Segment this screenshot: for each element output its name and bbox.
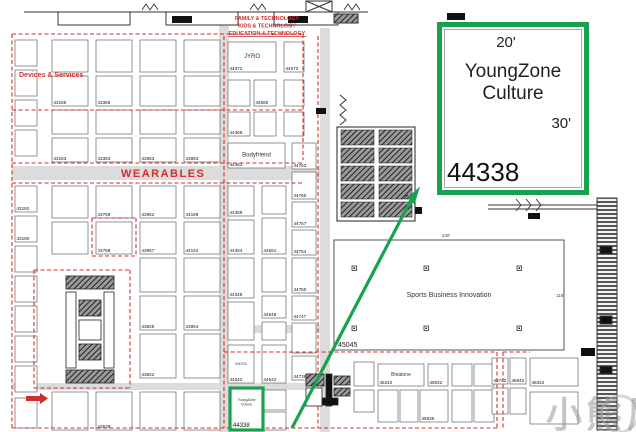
highlight-booth-name-2: Culture — [241, 403, 252, 407]
booth-number: 44763 — [294, 163, 307, 168]
open-area-dim-right: 118' — [556, 293, 564, 298]
booth — [15, 398, 37, 428]
booth-number: 43363 — [98, 156, 111, 161]
booth-number: 44747 — [294, 314, 307, 319]
callout-booth-number: 44338 — [447, 157, 519, 188]
floor-post-dot — [519, 268, 521, 270]
booth-name: MOTA — [235, 361, 247, 366]
booth — [262, 258, 286, 292]
booth-name: Binatone — [391, 372, 411, 378]
callout-dim-top: 20' — [442, 34, 570, 51]
booth-number: 43759 — [98, 212, 111, 217]
booth — [52, 40, 88, 72]
booth — [284, 80, 304, 106]
booth-number: 45242 — [380, 380, 393, 385]
callout-dim-right: 30' — [551, 115, 571, 132]
booth-number: 44754 — [294, 249, 307, 254]
booth-number: 44159 — [186, 212, 199, 217]
booth-number: 44354 — [230, 248, 243, 253]
booth-number: 45742 — [494, 378, 507, 383]
callout-name-line1: YoungZone — [442, 61, 584, 83]
booth — [52, 222, 88, 254]
booth-number: 44750 — [294, 287, 307, 292]
label-wearables: WEARABLES — [121, 168, 205, 180]
booth — [292, 323, 316, 353]
booth-number: 43954 — [186, 324, 199, 329]
booth — [184, 258, 220, 292]
booth-build-structure-left — [66, 276, 114, 383]
booth-number: 43758 — [98, 248, 111, 253]
top-wall — [24, 1, 368, 25]
floor-post-dot — [426, 268, 428, 270]
booth — [474, 390, 494, 422]
booth — [184, 392, 220, 430]
booth — [228, 80, 250, 106]
watermark-text: 小熊尼奥 — [546, 386, 636, 432]
bleacher-structure — [337, 95, 415, 221]
open-area-label: Sports Business Innovation — [407, 292, 492, 299]
booth-number: 44738 — [294, 374, 307, 379]
booth — [184, 334, 220, 378]
exhibit-floorplan-screenshot: { "page": {"width": 636, "height": 432},… — [0, 0, 636, 432]
booth — [228, 302, 254, 340]
booth — [284, 112, 304, 136]
highlight-booth-name-1: YoungZone — [238, 398, 256, 402]
booth-number: 44551 — [264, 248, 277, 253]
booth-number: 43957 — [142, 248, 155, 253]
booth — [400, 390, 418, 422]
booth — [140, 258, 176, 292]
open-area-sports: Sports Business Innovation 45045 230' 11… — [334, 233, 564, 350]
booth-number: 43963 — [186, 156, 199, 161]
booth — [15, 246, 37, 272]
booth-number: 44542 — [264, 377, 277, 382]
booth — [15, 100, 37, 126]
booth-number: 43166 — [54, 100, 67, 105]
booth — [15, 130, 37, 156]
booth — [254, 112, 276, 136]
booth-number: 44572 — [286, 66, 299, 71]
callout-name-line2: Culture — [442, 83, 584, 105]
label-family: FAMILY & TECHNOLOGY — [235, 16, 299, 22]
floor-post-dot — [354, 328, 356, 330]
booth — [378, 390, 398, 422]
booth — [354, 390, 374, 412]
booth-name: Bodyfriend — [242, 153, 271, 159]
open-area-number: 45045 — [338, 342, 358, 349]
label-devices: Devices & Services — [19, 72, 83, 79]
booth — [52, 110, 88, 134]
booth — [184, 76, 220, 106]
label-kids: KIDS & TECHNOLOGY — [238, 24, 296, 30]
booth — [262, 322, 286, 340]
booth — [140, 392, 176, 430]
booth — [474, 364, 494, 386]
booth-number: 43962 — [142, 212, 155, 217]
floor-post-dot — [519, 328, 521, 330]
booth-number: 44548 — [264, 312, 277, 317]
booth-number: 43190 — [17, 236, 30, 241]
booth — [510, 388, 526, 414]
booth — [140, 40, 176, 72]
booth-number: 44348 — [230, 292, 243, 297]
booth-number: 44760 — [294, 193, 307, 198]
booth — [262, 390, 286, 410]
booth — [140, 110, 176, 134]
booth-number: 43366 — [98, 100, 111, 105]
booth — [262, 412, 286, 430]
booth — [184, 40, 220, 72]
booth — [96, 110, 132, 134]
booth-number: 43842 — [142, 372, 155, 377]
booth — [492, 388, 508, 414]
booth-number: 44368 — [230, 130, 243, 135]
booth — [52, 186, 88, 218]
booth — [354, 362, 374, 386]
highlighted-booth-44338: YoungZone Culture 44338 — [230, 388, 263, 430]
booth-number: 43845 — [142, 324, 155, 329]
booth-number: 44372 — [230, 66, 243, 71]
booth-number: 46342 — [532, 380, 545, 385]
booth-number: 43563 — [142, 156, 155, 161]
booth — [15, 40, 37, 66]
open-area-dim-top: 230' — [442, 233, 451, 238]
floor-post-dot — [426, 328, 428, 330]
booth-number: 44342 — [230, 377, 243, 382]
booth-name: JYRO — [244, 54, 260, 60]
booth-number: 43163 — [54, 156, 67, 161]
booth-number: 45842 — [512, 378, 525, 383]
booth — [262, 186, 286, 214]
booth — [96, 40, 132, 72]
booth — [452, 390, 472, 422]
booth-number: 43192 — [17, 206, 30, 211]
booth-callout: 20' YoungZone Culture 30' 44338 — [437, 22, 589, 195]
booth-number: 44154 — [186, 248, 199, 253]
floor-post-dot — [354, 268, 356, 270]
booth-number: 45042 — [430, 380, 443, 385]
booth — [184, 110, 220, 134]
booth — [52, 392, 88, 430]
booth-number: 44757 — [294, 221, 307, 226]
booth-number: 45536 — [422, 416, 435, 421]
booth-number: 44580 — [256, 100, 269, 105]
highlight-booth-number: 44338 — [233, 423, 250, 429]
booth — [140, 76, 176, 106]
booth-number: 44359 — [230, 210, 243, 215]
booth — [452, 364, 472, 386]
